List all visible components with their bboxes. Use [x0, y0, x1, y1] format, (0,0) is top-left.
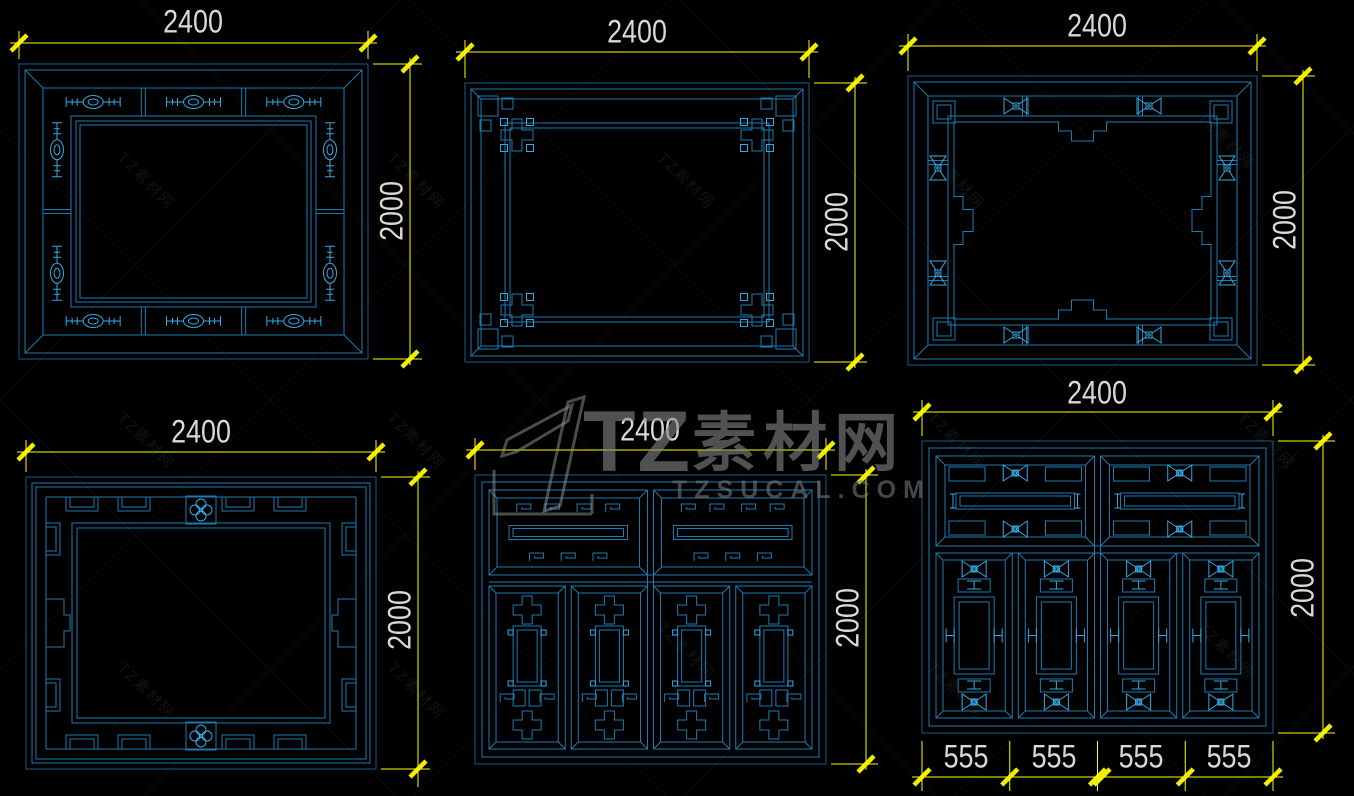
dim-panel-1-window-6: 555 [944, 739, 989, 776]
dim-height-window-5: 2000 [830, 588, 867, 648]
dim-height-window-6: 2000 [1285, 558, 1322, 618]
dim-panel-4-window-6: 555 [1207, 739, 1252, 776]
cad-canvas: TZ素材网TZ素材网TZ素材网TZ素材网TZ素材网TZ素材网TZ素材网TZ素材网… [0, 0, 1354, 796]
dim-width-window-5: 2400 [620, 412, 680, 449]
dim-height-window-1: 2000 [374, 181, 411, 241]
dim-width-window-2: 2400 [607, 14, 667, 51]
dim-height-window-2: 2000 [819, 192, 856, 252]
dim-width-window-1: 2400 [163, 4, 223, 41]
dim-panel-2-window-6: 555 [1032, 739, 1077, 776]
cad-drawing-layer [0, 0, 1354, 796]
dim-panel-3-window-6: 555 [1119, 739, 1164, 776]
dim-width-window-4: 2400 [171, 414, 231, 451]
dim-width-window-3: 2400 [1067, 8, 1127, 45]
dim-height-window-4: 2000 [382, 590, 419, 650]
dim-width-window-6: 2400 [1067, 375, 1127, 412]
dim-height-window-3: 2000 [1267, 190, 1304, 250]
